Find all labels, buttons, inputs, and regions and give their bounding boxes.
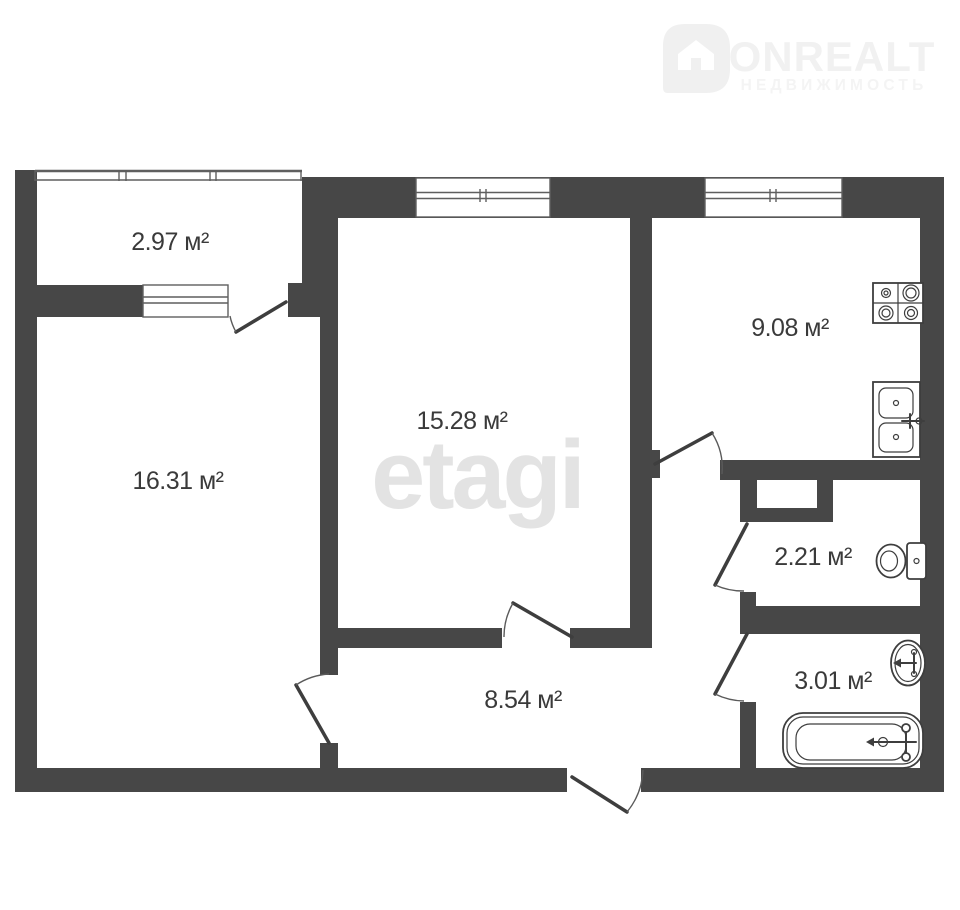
hallway-area-label: 8.54 м² <box>484 686 562 714</box>
wall-balcony-bottom <box>15 285 143 317</box>
wall-outer-top <box>302 177 944 218</box>
living-room-window <box>143 285 228 317</box>
wall-living-bedroom <box>320 315 338 675</box>
brand-watermark: ONREALT <box>729 33 936 80</box>
kitchen-sink-icon <box>873 382 924 457</box>
toilet-icon <box>877 543 927 579</box>
wc-area-label: 2.21 м² <box>774 543 852 571</box>
shaft-left-wall <box>740 480 757 510</box>
wall-outer-bottom-left <box>15 768 567 792</box>
bedroom-window <box>416 178 550 217</box>
bedroom-area-label: 15.28 м² <box>416 407 507 435</box>
wall-living-door-stub <box>320 743 338 770</box>
living-room-area-label: 16.31 м² <box>132 467 223 495</box>
bathroom-area-label: 3.01 м² <box>794 667 872 695</box>
balcony-area-label: 2.97 м² <box>131 228 209 256</box>
onrealt-logo: ONREALT НЕДВИЖИМОСТЬ <box>663 24 935 94</box>
wall-kitchen-bottom <box>720 460 944 480</box>
kitchen-area-label: 9.08 м² <box>751 314 829 342</box>
stove-icon <box>873 283 923 323</box>
brand-sub-watermark: НЕДВИЖИМОСТЬ <box>741 77 928 94</box>
wall-outer-bottom-right <box>641 768 944 792</box>
kitchen-window <box>705 178 842 217</box>
etagi-watermark: etagi <box>371 420 582 529</box>
house-door <box>691 58 701 70</box>
floor-plan-svg: ONREALT НЕДВИЖИМОСТЬ etagi <box>0 0 960 910</box>
wall-bedroom-bottom-left <box>338 628 502 648</box>
wall-bedroom-kitchen <box>630 218 652 648</box>
wall-outer-left <box>15 170 37 792</box>
bath-sink-icon <box>891 641 925 686</box>
shaft-bottom-wall <box>740 508 833 522</box>
wall-wc-bathroom <box>753 606 944 634</box>
floor-plan-image: ONREALT НЕДВИЖИМОСТЬ etagi <box>0 0 960 910</box>
bathtub-icon <box>783 713 923 768</box>
wall-balcony-right <box>302 177 338 317</box>
wall-bathroom-left-stub <box>740 702 756 768</box>
